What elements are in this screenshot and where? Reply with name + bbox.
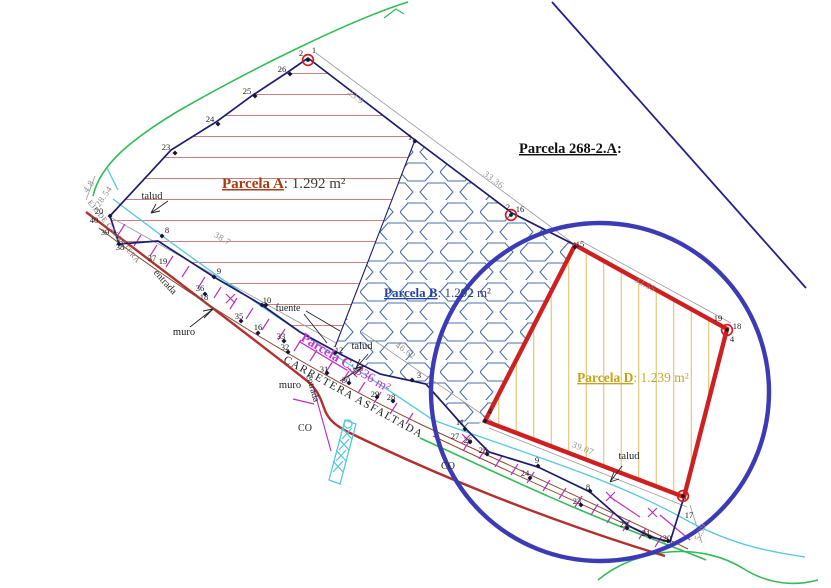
- point-label: 1: [408, 132, 412, 142]
- point-label: 8: [586, 482, 590, 492]
- cadastral-plan: 23.933.3632.5538.746.6239.074.828.545.39…: [0, 0, 831, 588]
- parcel-d-value: 1.239 m²: [641, 370, 689, 385]
- point-label: 23: [162, 142, 171, 152]
- annotation-label: talud: [619, 451, 641, 462]
- point-label: 11: [456, 417, 464, 427]
- point-label: 20: [663, 533, 672, 543]
- title-colon: :: [617, 141, 622, 157]
- point-label: 39: [101, 227, 110, 237]
- point-label: 9: [217, 266, 221, 276]
- parcel-b-sep: :: [438, 285, 445, 300]
- annotation-label: fuente: [276, 303, 302, 314]
- point-label: 10: [263, 295, 272, 305]
- title-parcela-268: Parcela 268-2.A:: [519, 141, 622, 157]
- point-label: 19: [159, 256, 168, 266]
- point-label: 17: [685, 510, 694, 520]
- point-label: 24: [521, 468, 530, 478]
- key-point-dot: [681, 494, 685, 498]
- point-label: 2: [506, 202, 510, 212]
- parcel-d-label: Parcela D: 1.239 m²: [577, 370, 689, 385]
- parcel-a-sep: :: [284, 176, 292, 192]
- point-label: 25: [243, 86, 252, 96]
- point-label: 31: [320, 364, 329, 374]
- point-label: 40: [90, 215, 99, 225]
- point-label: 3: [417, 370, 421, 380]
- point-label: 28: [387, 392, 396, 402]
- key-point-dot: [306, 58, 310, 62]
- point-label: 30: [342, 375, 351, 385]
- point-label: 18: [733, 321, 742, 331]
- point-label: 26: [464, 435, 473, 445]
- point-label: 16: [254, 322, 263, 332]
- point-label: 35: [235, 311, 244, 321]
- point-label: 23: [573, 496, 582, 506]
- muro-arrow-1: [190, 309, 213, 327]
- point-label: 2: [299, 48, 303, 58]
- title-text: Parcela 268-2.A: [519, 141, 618, 157]
- annotation-label: CO: [298, 423, 312, 434]
- parcel-b-value: 1.292 m²: [444, 285, 491, 300]
- point-label: 19: [714, 313, 723, 323]
- point-label: 32: [281, 342, 290, 352]
- point-label: 38: [116, 242, 125, 252]
- point-label: 4: [730, 334, 735, 344]
- point-label: 15: [576, 239, 585, 249]
- parcel-b-label: Parcela B: 1.292 m²: [384, 285, 491, 300]
- parcel-d-name: Parcela D: [577, 370, 634, 385]
- point-label: 25: [479, 445, 488, 455]
- parcel-b-name: Parcela B: [384, 285, 438, 300]
- contour-mark: [384, 9, 404, 18]
- point-label: 26: [278, 64, 287, 74]
- dimension-label: 33.36: [482, 169, 506, 191]
- plan-drawing: 23.933.3632.5538.746.6239.074.828.545.39…: [0, 0, 831, 588]
- annotation-label: talud: [142, 191, 164, 202]
- point-label: 29: [371, 389, 380, 399]
- annotation-label: talud: [352, 341, 374, 352]
- point-label: 37: [148, 253, 157, 263]
- point-label: 9: [535, 455, 539, 465]
- point-label: 21: [642, 528, 651, 538]
- annotation-label: CO: [441, 461, 455, 472]
- parcel-d-sep: :: [633, 370, 640, 385]
- annotation-label: muro: [279, 380, 301, 391]
- point-label: 27: [451, 431, 460, 441]
- point-label: 18: [200, 292, 209, 302]
- point-label: 1: [312, 45, 316, 55]
- point-label: 24: [206, 114, 215, 124]
- key-point-dot: [509, 213, 513, 217]
- point-label: 22: [620, 519, 629, 529]
- parcel-a-value: 1.292 m²: [292, 176, 346, 192]
- key-point-dot: [725, 328, 729, 332]
- parcel-a-name: Parcela A: [222, 176, 284, 192]
- point-label: 33: [277, 331, 286, 341]
- stairs-feature: [329, 420, 356, 484]
- point-label: 16: [516, 204, 525, 214]
- annotation-label: muro: [173, 327, 195, 338]
- parcel-a-label: Parcela A: 1.292 m²: [222, 176, 346, 192]
- point-label: 8: [165, 225, 169, 235]
